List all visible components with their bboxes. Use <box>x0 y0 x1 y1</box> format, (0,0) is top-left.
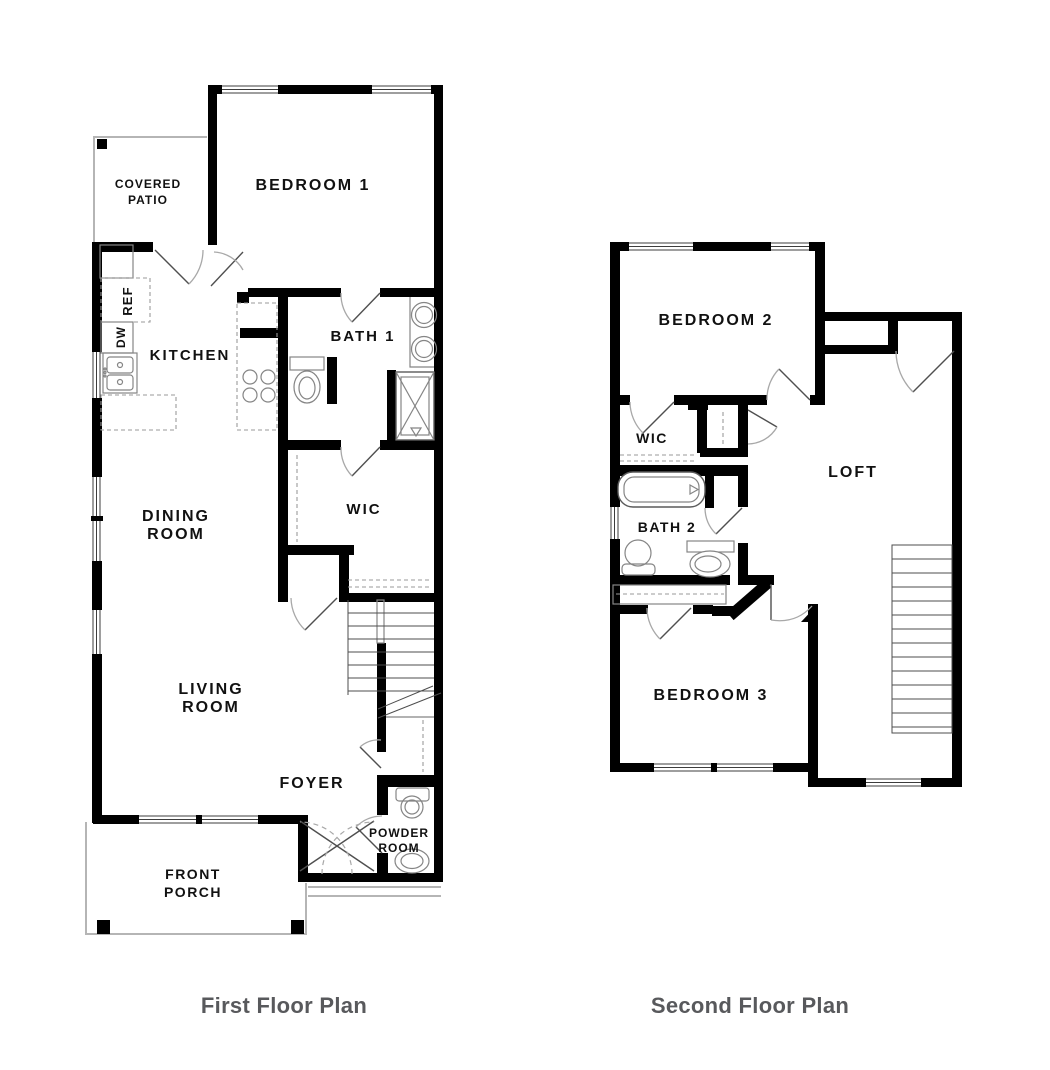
room-label-bedroom-2: BEDROOM 2 <box>659 312 774 329</box>
window <box>609 507 621 539</box>
toilet <box>687 541 734 577</box>
window <box>91 352 103 398</box>
sink <box>412 303 437 328</box>
first-floor-plan-drawing: COVERED PATIO BEDROOM 1 KITCHEN REF DW B… <box>80 80 450 945</box>
shower <box>396 372 434 440</box>
door <box>341 447 380 476</box>
room-label-front-porch: FRONT <box>165 866 221 882</box>
window <box>629 241 693 252</box>
window <box>771 241 809 252</box>
window <box>654 762 711 773</box>
room-label-powder-room: POWDER <box>369 826 429 840</box>
room-label-living-room: LIVING <box>178 681 243 698</box>
door <box>630 402 674 433</box>
room-label-powder-room-2: ROOM <box>378 841 419 855</box>
entry-door <box>300 821 374 874</box>
appliance-label-ref: REF <box>120 286 135 316</box>
caption-second-floor-plan: Second Floor Plan <box>651 993 849 1019</box>
window <box>717 762 773 773</box>
door <box>291 598 337 630</box>
sink <box>622 540 655 575</box>
room-label-kitchen: KITCHEN <box>150 347 231 364</box>
window <box>202 814 258 825</box>
room-label-bedroom-1: BEDROOM 1 <box>256 177 371 194</box>
room-label-bedroom-3: BEDROOM 3 <box>654 687 769 704</box>
cooktop <box>237 303 277 430</box>
window <box>91 477 103 561</box>
second-floor-plan-drawing: BEDROOM 2 WIC BATH 2 LOFT BEDROOM 3 <box>600 235 970 795</box>
window <box>222 84 278 95</box>
room-label-dining-room: DINING <box>142 508 210 525</box>
room-label-wic: WIC <box>346 501 381 518</box>
room-label-wic: WIC <box>636 430 668 446</box>
window <box>866 777 921 788</box>
room-label-covered-patio: COVERED <box>115 177 181 191</box>
bathtub <box>618 472 705 507</box>
window <box>139 814 196 825</box>
floorplan-canvas: COVERED PATIO BEDROOM 1 KITCHEN REF DW B… <box>0 0 1050 1070</box>
room-label-dining-room-2: ROOM <box>147 526 205 543</box>
room-label-front-porch-2: PORCH <box>164 884 222 900</box>
door <box>771 584 812 621</box>
toilet <box>290 357 324 403</box>
door <box>705 508 742 534</box>
door <box>748 410 777 444</box>
kitchen-sink <box>103 353 137 393</box>
room-label-living-room-2: ROOM <box>182 699 240 716</box>
door <box>341 293 380 322</box>
staircase <box>892 545 952 733</box>
door <box>211 252 243 286</box>
appliance-label-dw: DW <box>114 326 128 348</box>
door <box>767 369 810 400</box>
room-label-foyer: FOYER <box>279 775 344 792</box>
door <box>896 351 954 392</box>
room-label-bath-1: BATH 1 <box>330 328 395 345</box>
door <box>647 608 691 639</box>
room-label-loft: LOFT <box>828 464 878 481</box>
sink <box>412 337 437 362</box>
bath1-fixtures <box>290 297 437 440</box>
window <box>91 610 103 654</box>
door <box>155 250 203 284</box>
caption-first-floor-plan: First Floor Plan <box>201 993 367 1019</box>
room-label-covered-patio-2: PATIO <box>128 193 168 207</box>
staircase <box>348 600 441 718</box>
room-label-bath-2: BATH 2 <box>638 519 697 535</box>
window <box>372 84 431 95</box>
